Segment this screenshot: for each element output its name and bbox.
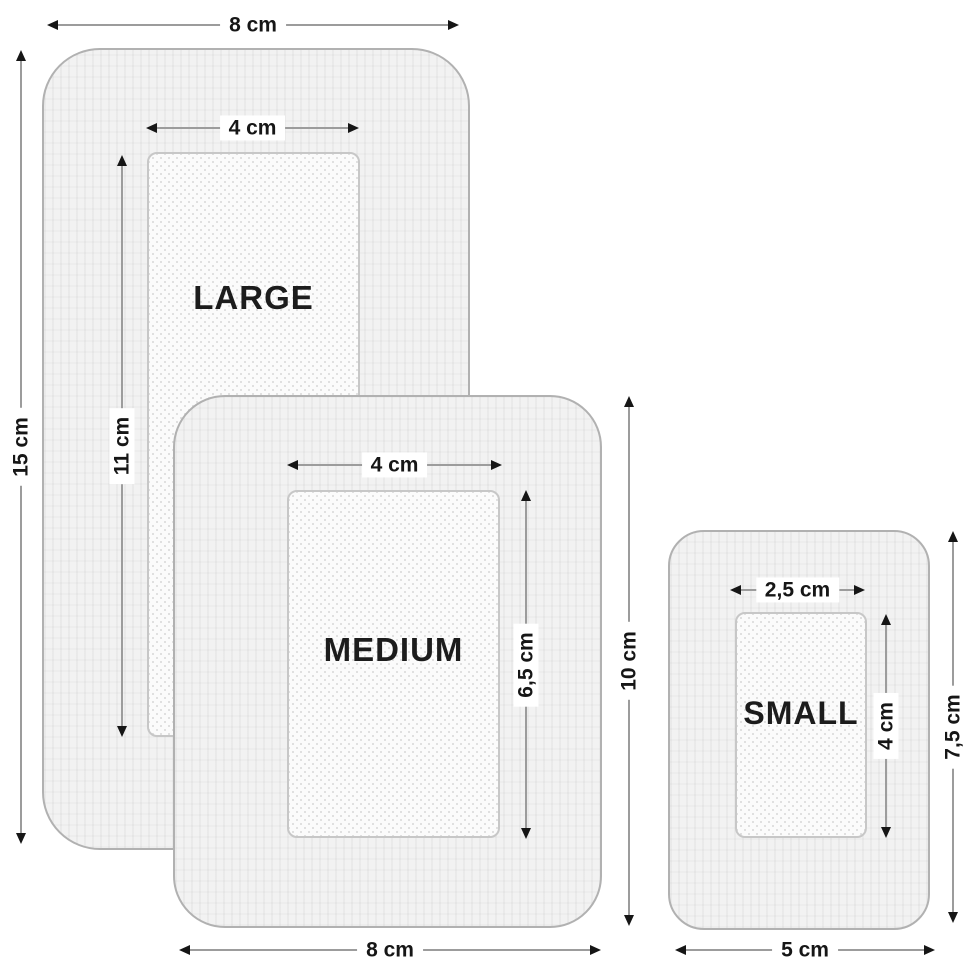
dim-label: 6,5 cm	[513, 623, 538, 706]
arrow-right-icon	[590, 945, 601, 955]
arrow-right-icon	[348, 123, 359, 133]
arrow-left-icon	[47, 20, 58, 30]
arrow-left-icon	[675, 945, 686, 955]
dim-label: 8 cm	[220, 12, 286, 37]
arrow-down-icon	[521, 828, 531, 839]
arrow-left-icon	[179, 945, 190, 955]
label-small: SMALL	[735, 697, 867, 729]
arrow-left-icon	[730, 585, 741, 595]
arrow-left-icon	[287, 460, 298, 470]
arrow-right-icon	[924, 945, 935, 955]
dim-label: 2,5 cm	[756, 577, 839, 602]
dim-label: 11 cm	[109, 408, 134, 484]
arrow-right-icon	[448, 20, 459, 30]
dim-label: 15 cm	[8, 408, 33, 486]
dim-label: 7,5 cm	[940, 685, 965, 768]
dim-large-outer-width: 8 cm	[48, 14, 458, 36]
arrow-up-icon	[881, 614, 891, 625]
dim-label: 4 cm	[220, 115, 286, 140]
dim-small-pad-width: 2,5 cm	[731, 579, 864, 601]
dim-medium-pad-width: 4 cm	[288, 454, 501, 476]
dim-small-outer-width: 5 cm	[676, 939, 934, 961]
arrow-down-icon	[16, 833, 26, 844]
dim-small-outer-height: 7,5 cm	[942, 532, 964, 922]
dim-small-pad-height: 4 cm	[875, 615, 897, 837]
label-medium: MEDIUM	[287, 633, 500, 666]
bandage-sizes-diagram: LARGE MEDIUM SMALL 8 cm 15 cm 4 cm 11 cm…	[0, 0, 970, 971]
arrow-up-icon	[624, 396, 634, 407]
dim-medium-outer-height: 10 cm	[618, 397, 640, 925]
arrow-down-icon	[117, 726, 127, 737]
arrow-up-icon	[117, 155, 127, 166]
dim-medium-pad-height: 6,5 cm	[515, 491, 537, 838]
arrow-down-icon	[948, 912, 958, 923]
dim-label: 10 cm	[616, 622, 641, 700]
arrow-left-icon	[146, 123, 157, 133]
dim-large-pad-height: 11 cm	[111, 156, 133, 736]
arrow-up-icon	[16, 50, 26, 61]
arrow-down-icon	[881, 827, 891, 838]
dim-large-pad-width: 4 cm	[147, 117, 358, 139]
arrow-down-icon	[624, 915, 634, 926]
arrow-right-icon	[854, 585, 865, 595]
dim-label: 4 cm	[873, 693, 898, 759]
dim-label: 5 cm	[772, 937, 838, 962]
arrow-up-icon	[521, 490, 531, 501]
label-large: LARGE	[147, 281, 360, 314]
dim-label: 4 cm	[362, 452, 428, 477]
arrow-up-icon	[948, 531, 958, 542]
dim-label: 8 cm	[357, 937, 423, 962]
arrow-right-icon	[491, 460, 502, 470]
dim-medium-outer-width: 8 cm	[180, 939, 600, 961]
dim-large-outer-height: 15 cm	[10, 51, 32, 843]
